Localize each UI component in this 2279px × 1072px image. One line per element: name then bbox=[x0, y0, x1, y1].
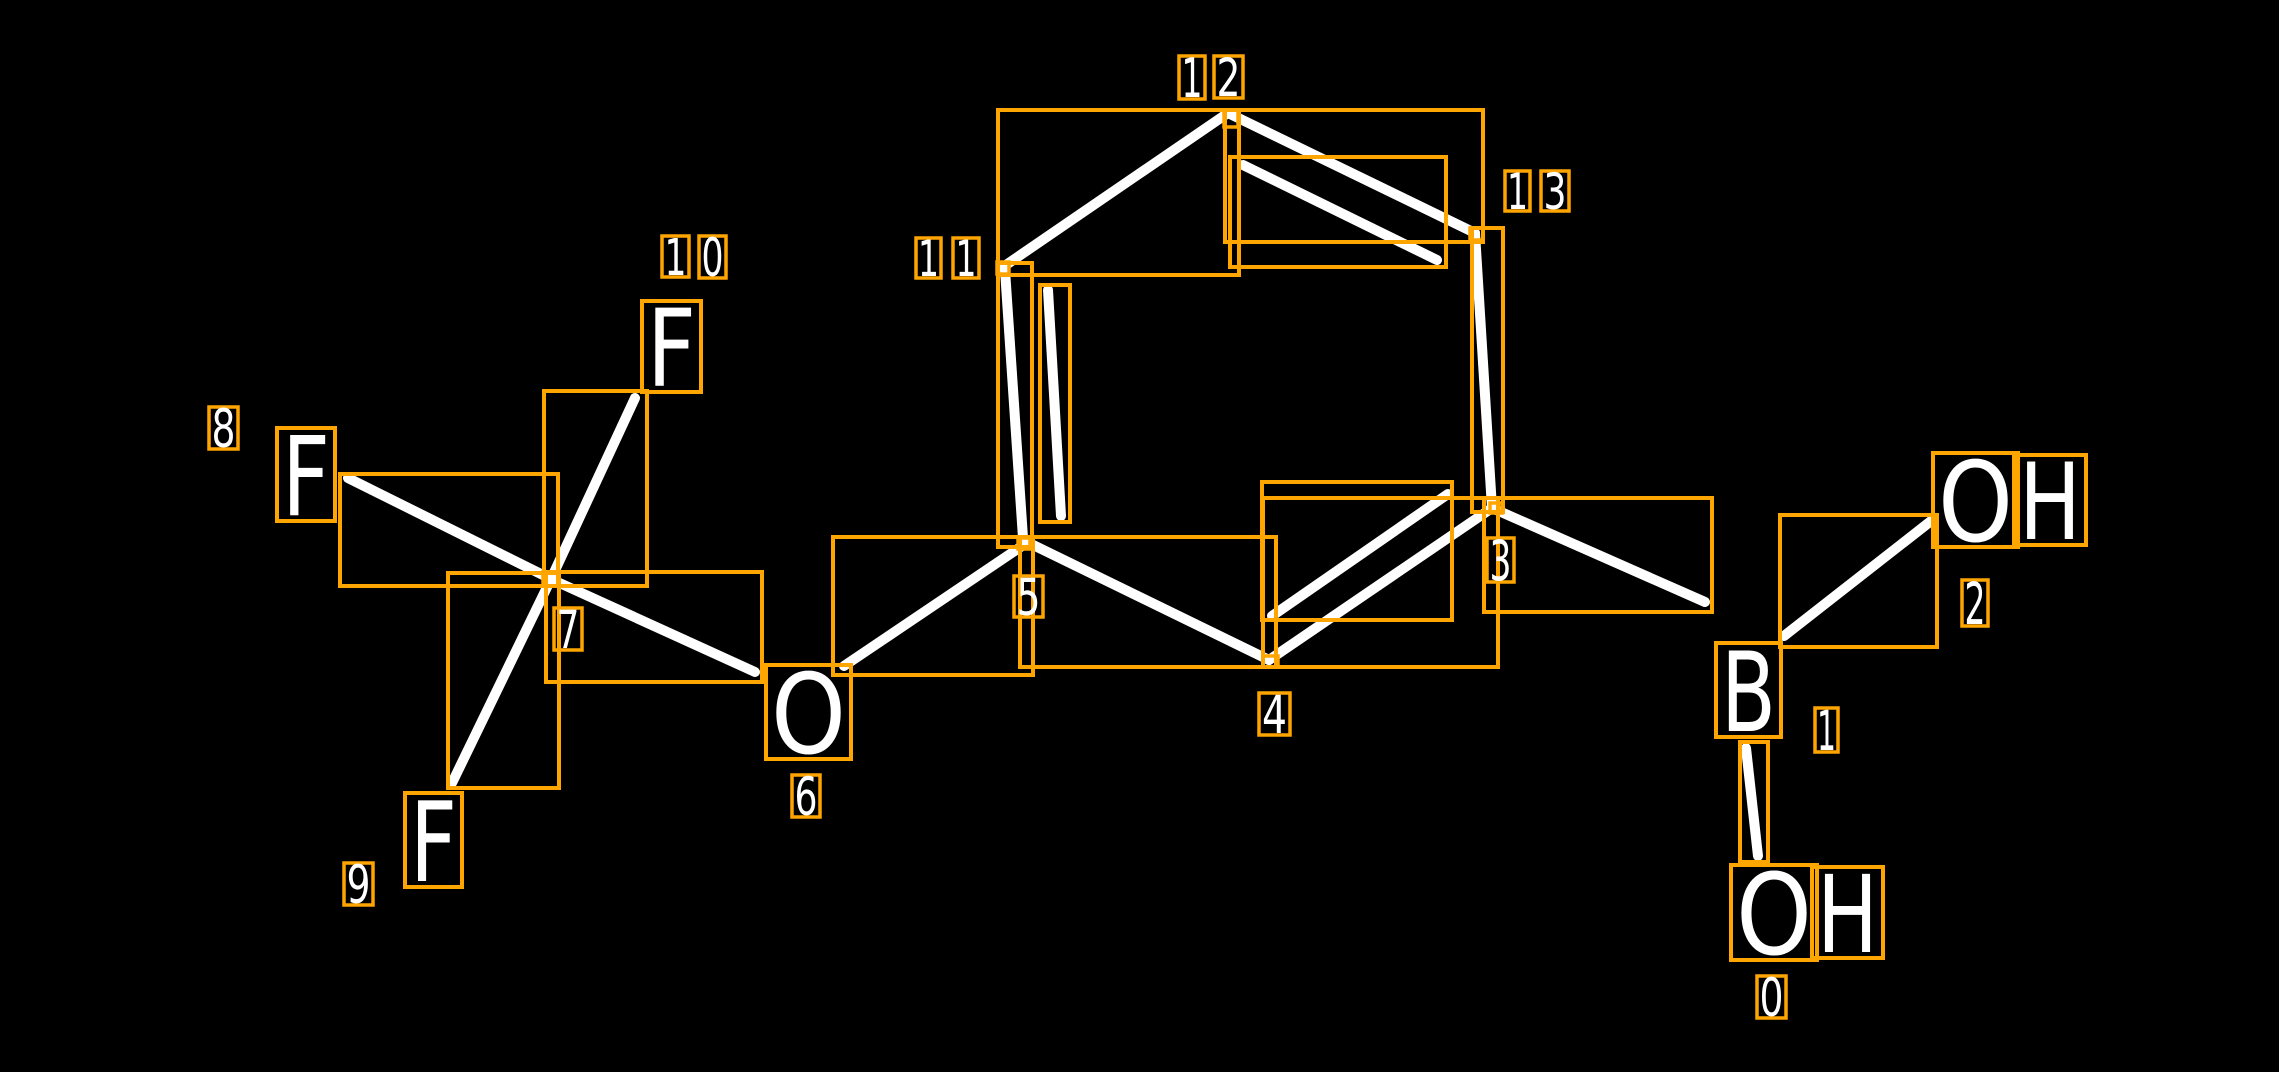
atom-index-10-digit-1: 0 bbox=[702, 228, 724, 289]
atom-index-8: 8 bbox=[212, 399, 236, 460]
molecule-annotation-canvas: OHBOHOFFF012345678910111213 bbox=[0, 0, 2279, 1072]
atom-index-2: 2 bbox=[1965, 570, 1986, 638]
bond-7-8 bbox=[348, 478, 551, 579]
atom-index-12-digit-1: 2 bbox=[1217, 48, 1241, 109]
bond-5-4 bbox=[1027, 542, 1269, 660]
atom-index-1: 1 bbox=[1817, 699, 1836, 763]
atom-index-12-digit-0: 1 bbox=[1182, 47, 1203, 110]
atom-index-9: 9 bbox=[347, 855, 371, 916]
bond-B-OH0 bbox=[1746, 748, 1758, 856]
atom-index-5: 5 bbox=[1017, 569, 1041, 628]
bond-7-9 bbox=[452, 579, 551, 783]
bond-11-12 bbox=[1003, 113, 1228, 267]
atom-index-0: 0 bbox=[1760, 968, 1784, 1029]
bond-B-OH2 bbox=[1784, 521, 1931, 636]
bond-13-3 bbox=[1475, 233, 1492, 508]
atom-index-13-digit-0: 1 bbox=[1507, 163, 1528, 221]
atom-index-11-digit-1: 1 bbox=[956, 230, 977, 288]
atom-index-4: 4 bbox=[1262, 685, 1287, 746]
bond-5-6 bbox=[844, 546, 1022, 666]
bond-7-10 bbox=[551, 398, 635, 579]
bond-11-5-inner bbox=[1048, 290, 1061, 516]
atom-index-3: 3 bbox=[1490, 529, 1512, 593]
bond-11-5 bbox=[1005, 270, 1023, 538]
bond-12-13-inner bbox=[1243, 165, 1437, 260]
bond-4-3 bbox=[1269, 508, 1492, 660]
atom-index-6: 6 bbox=[795, 767, 818, 828]
molecule-svg: OHBOHOFFF012345678910111213 bbox=[0, 0, 2279, 1072]
bond-3-B bbox=[1492, 508, 1705, 602]
atom-index-7: 7 bbox=[557, 600, 580, 661]
atom-index-13-digit-1: 3 bbox=[1544, 163, 1567, 221]
atom-index-10-digit-0: 1 bbox=[665, 229, 687, 288]
atom-index-11-digit-0: 1 bbox=[918, 230, 939, 288]
